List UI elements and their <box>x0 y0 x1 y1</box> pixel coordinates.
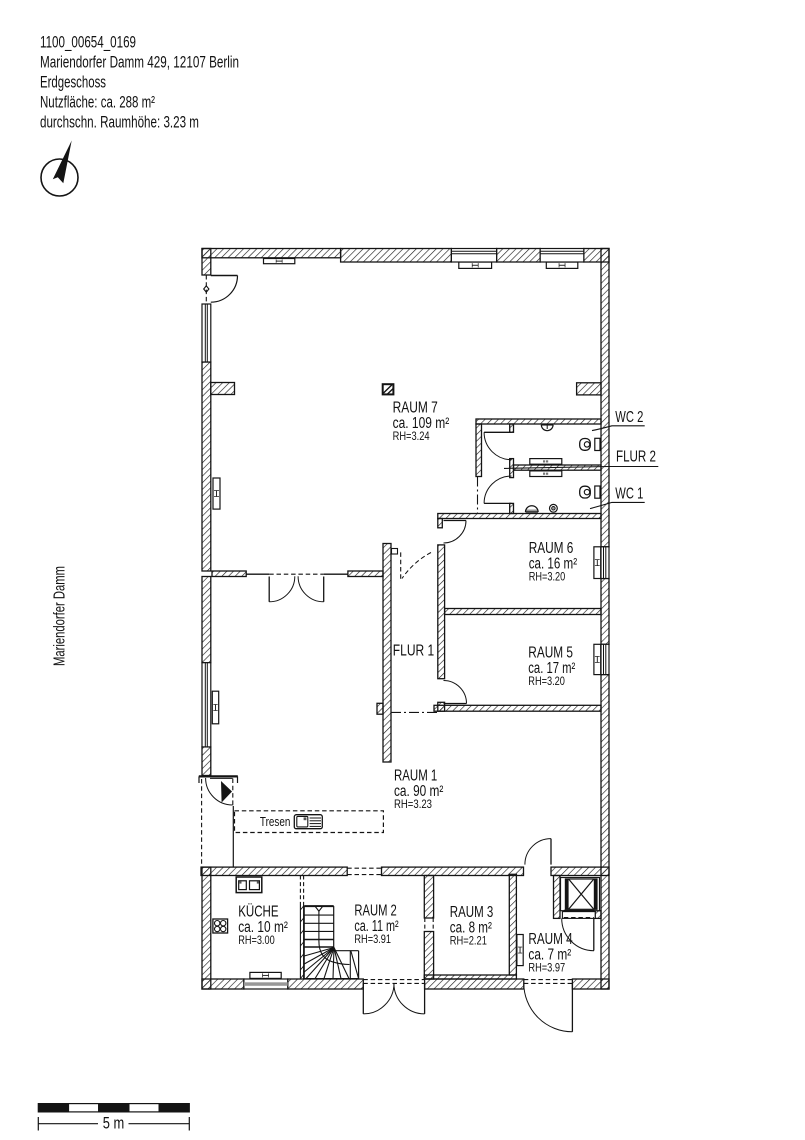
svg-text:RH=3.20: RH=3.20 <box>529 570 566 584</box>
svg-text:RH=3.91: RH=3.91 <box>354 932 391 946</box>
svg-text:RAUM 5: RAUM 5 <box>528 645 573 662</box>
svg-text:RAUM 2: RAUM 2 <box>354 902 396 919</box>
svg-text:RH=3.20: RH=3.20 <box>528 674 565 688</box>
svg-text:RH=2.21: RH=2.21 <box>450 933 487 947</box>
svg-text:RAUM 7: RAUM 7 <box>393 399 438 416</box>
svg-text:RH=3.00: RH=3.00 <box>238 933 275 947</box>
svg-text:WC 1: WC 1 <box>615 485 643 502</box>
svg-text:KÜCHE: KÜCHE <box>238 902 278 920</box>
svg-text:RAUM 1: RAUM 1 <box>394 767 437 784</box>
svg-text:1100_00654_0169: 1100_00654_0169 <box>40 34 136 52</box>
svg-text:RAUM 4: RAUM 4 <box>528 931 573 948</box>
svg-text:RAUM 6: RAUM 6 <box>529 540 574 557</box>
svg-text:durchschn. Raumhöhe: 3.23 m: durchschn. Raumhöhe: 3.23 m <box>40 114 199 132</box>
svg-text:RH=3.24: RH=3.24 <box>393 429 430 443</box>
svg-text:FLUR 2: FLUR 2 <box>616 448 656 465</box>
svg-text:Nutzfläche: ca. 288 m²: Nutzfläche: ca. 288 m² <box>40 94 155 112</box>
svg-text:Mariendorfer Damm 429, 12107 B: Mariendorfer Damm 429, 12107 Berlin <box>40 54 239 72</box>
svg-text:5 m: 5 m <box>103 1113 125 1132</box>
svg-text:RH=3.23: RH=3.23 <box>394 797 432 811</box>
svg-text:RAUM 3: RAUM 3 <box>450 904 494 921</box>
svg-text:Tresen: Tresen <box>260 815 291 829</box>
svg-text:Erdgeschoss: Erdgeschoss <box>40 74 106 92</box>
svg-text:Mariendorfer Damm: Mariendorfer Damm <box>52 566 69 666</box>
svg-text:FLUR 1: FLUR 1 <box>393 643 434 660</box>
svg-text:WC 2: WC 2 <box>615 409 643 426</box>
svg-text:RH=3.97: RH=3.97 <box>528 960 565 974</box>
